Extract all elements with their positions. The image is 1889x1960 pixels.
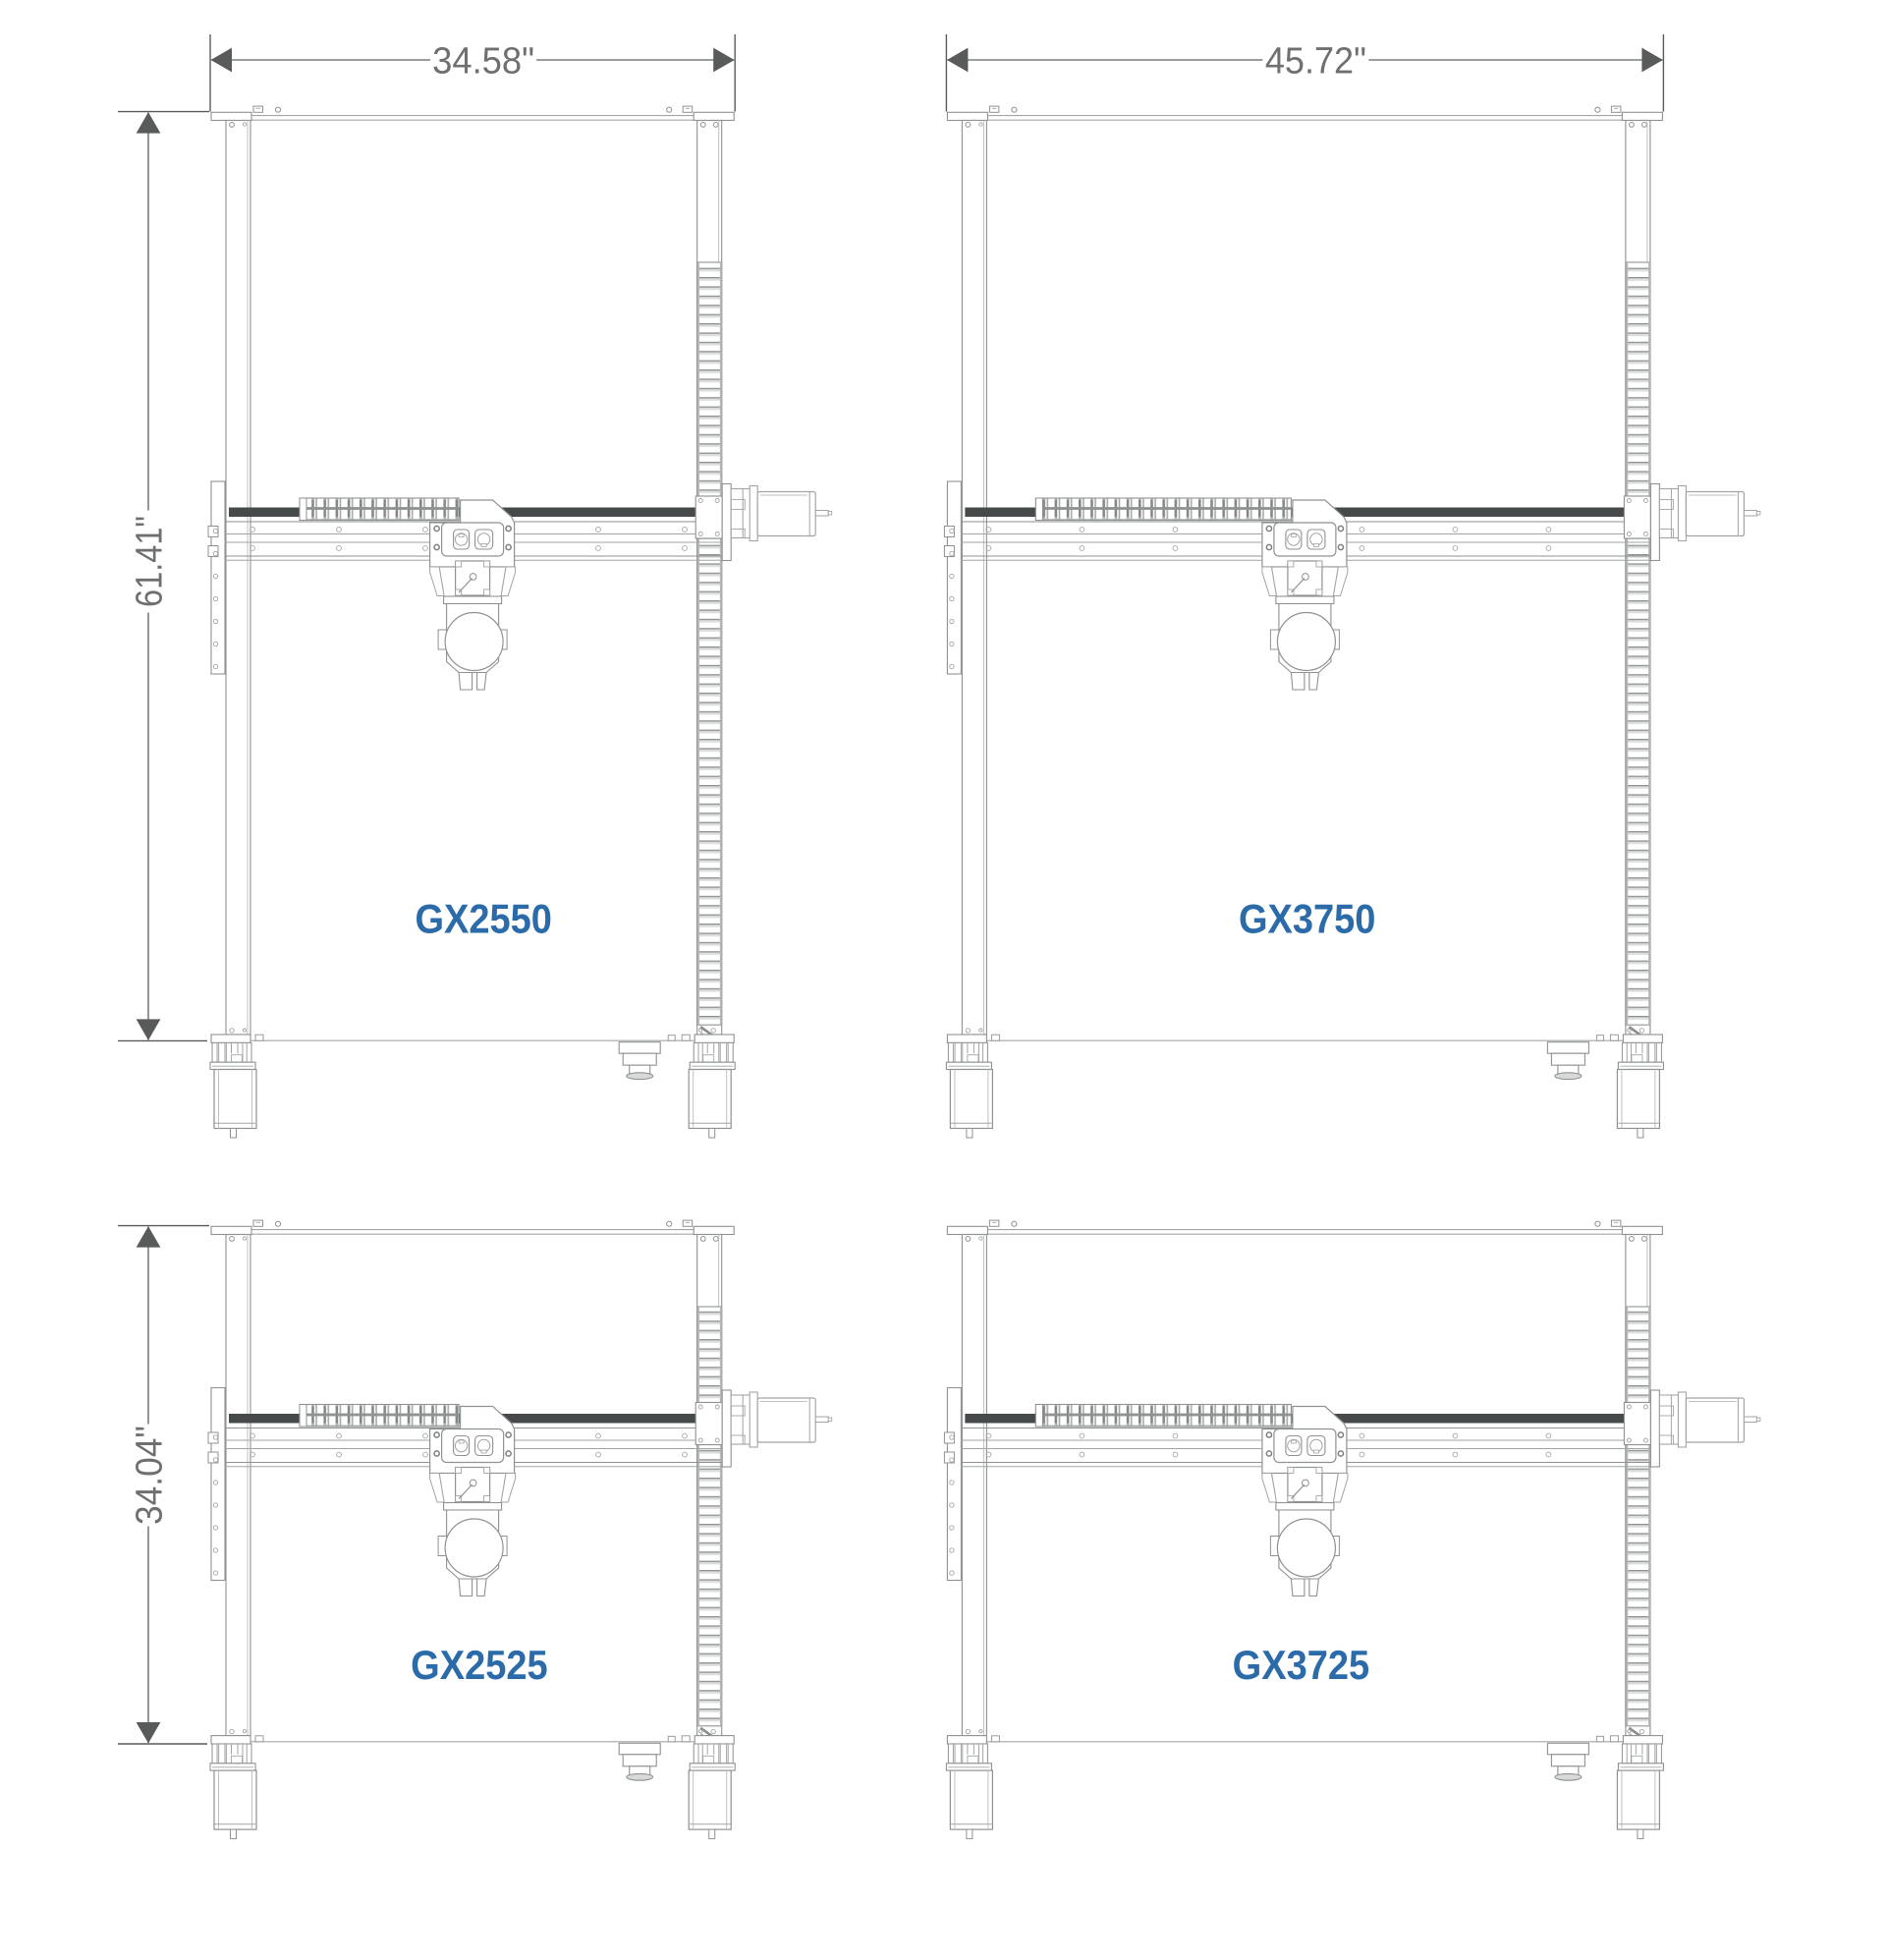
svg-text:GX3725: GX3725 <box>1233 1642 1370 1688</box>
svg-text:GX2525: GX2525 <box>411 1642 548 1688</box>
svg-text:GX3750: GX3750 <box>1239 896 1376 942</box>
svg-text:GX2550: GX2550 <box>415 895 552 941</box>
svg-text:34.58": 34.58" <box>432 41 534 83</box>
svg-text:45.72": 45.72" <box>1265 41 1366 83</box>
svg-text:61.41": 61.41" <box>130 516 171 607</box>
svg-text:34.04": 34.04" <box>130 1426 171 1525</box>
